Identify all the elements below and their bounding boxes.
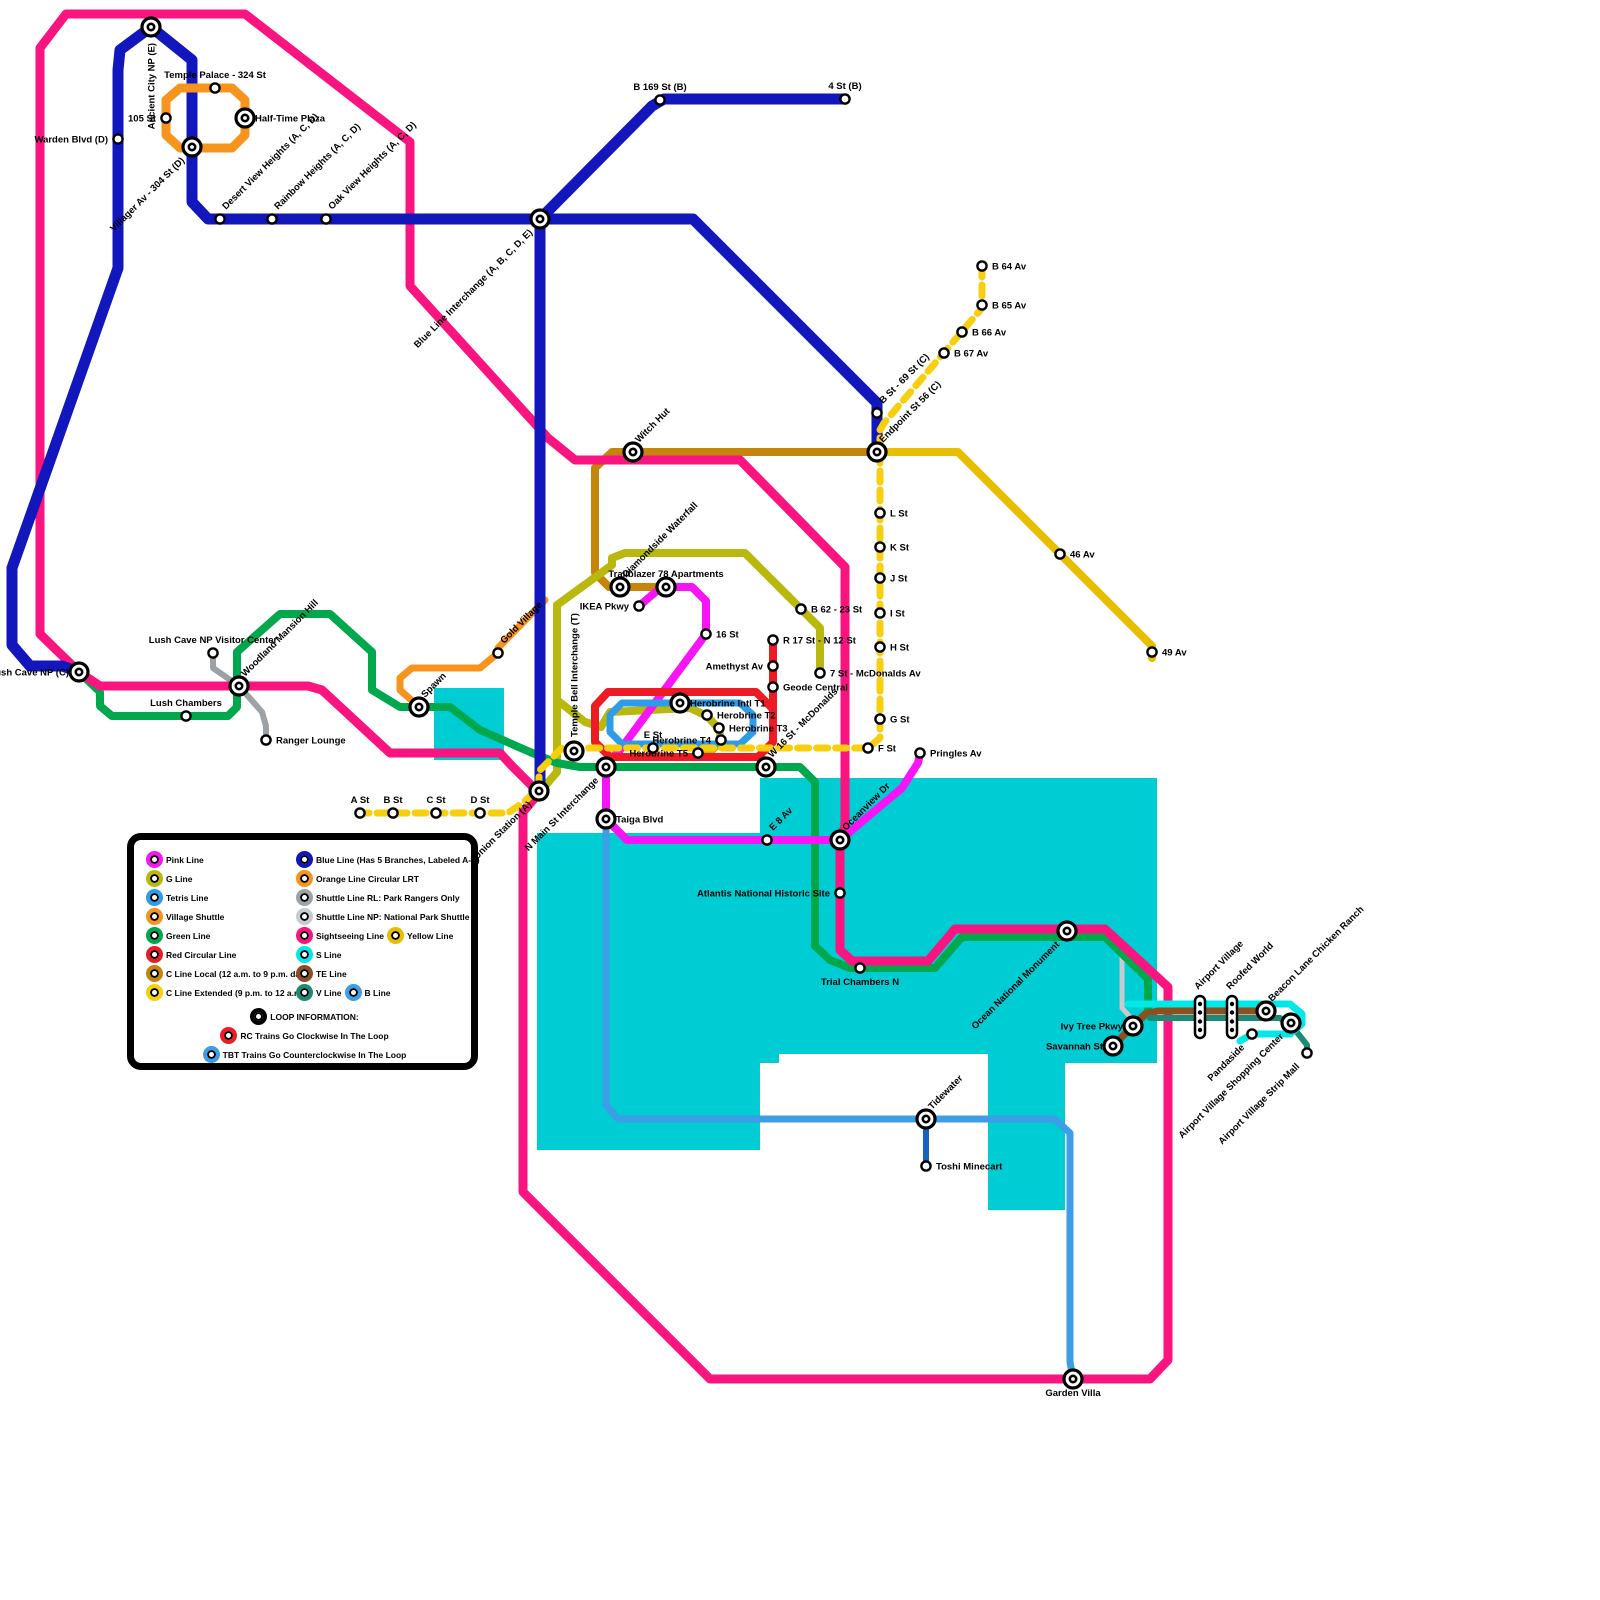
legend-row: Tetris Line — [146, 888, 296, 907]
legend-row: TE Line — [296, 964, 466, 983]
station-atlantis-national-historic-site[interactable]: Atlantis National Historic Site — [697, 888, 845, 899]
legend-item-label: Shuttle Line NP: National Park Shuttle — [316, 912, 470, 922]
loop-info-icon — [250, 1008, 267, 1025]
legend-item: TE Line — [296, 965, 347, 982]
legend-row: Shuttle Line NP: National Park Shuttle — [296, 907, 466, 926]
legend-item: Sightseeing Line — [296, 927, 384, 944]
station-label-b-62-23-st: B 62 - 23 St — [811, 605, 863, 616]
station-b-66-av[interactable]: B 66 Av — [957, 327, 1006, 338]
legend-item: Orange Line Circular LRT — [296, 870, 419, 887]
station-label-blue-line-interchange: Blue Line Interchange (A, B, C, D, E) — [412, 227, 535, 350]
line-bullet-icon — [387, 927, 404, 944]
legend-item-label: Red Circular Line — [166, 950, 236, 960]
legend-row: Sightseeing Line Yellow Line — [296, 926, 466, 945]
legend-item-label: G Line — [166, 874, 192, 884]
station-label-g-st: G St — [890, 715, 910, 726]
line-orange-line-circular-lrt — [166, 88, 245, 148]
station-label-airport-village-strip-mall: Airport Village Strip Mall — [1216, 1061, 1302, 1147]
legend-column-left: Pink Line G Line Tetris Line Village Shu… — [146, 850, 296, 1002]
line-bullet-icon — [220, 1027, 237, 1044]
station-label-b-67-av: B 67 Av — [954, 349, 989, 360]
legend-row: G Line — [146, 869, 296, 888]
station-label-b-st: B St — [384, 795, 404, 806]
station-oak-view-heights[interactable]: Oak View Heights (A, C, D) — [321, 120, 418, 224]
station-16-st[interactable]: 16 St — [701, 629, 739, 640]
line-yellow-line — [877, 452, 1152, 658]
station-label-b-65-av: B 65 Av — [992, 301, 1027, 312]
ocean-area-south — [988, 1063, 1065, 1210]
legend-item: Tetris Line — [146, 889, 208, 906]
legend-item: V Line — [296, 984, 342, 1001]
legend-item: TBT Trains Go Counterclockwise In The Lo… — [203, 1046, 407, 1063]
station-blue-line-interchange[interactable]: Blue Line Interchange (A, B, C, D, E) — [412, 210, 549, 350]
station-b-64-av[interactable]: B 64 Av — [977, 261, 1026, 272]
station-ranger-lounge[interactable]: Ranger Lounge — [261, 735, 345, 746]
legend-item: B Line — [345, 984, 391, 1001]
legend-item-label: C Line Extended (9 p.m. to 12 a.m.) — [166, 988, 307, 998]
line-bullet-icon — [146, 851, 163, 868]
legend-item-label: S Line — [316, 950, 342, 960]
station-label-d-st: D St — [471, 795, 491, 806]
station-label-herobrine-t5: Herobrine T5 — [629, 749, 688, 760]
station-label-pringles-av: Pringles Av — [930, 749, 982, 760]
station-label-rainbow-heights: Rainbow Heights (A, C, D) — [272, 121, 363, 212]
station-temple-bell-interchange[interactable]: Temple Bell Interchange (T) — [565, 613, 583, 760]
legend-row: Green Line — [146, 926, 296, 945]
station-b-65-av[interactable]: B 65 Av — [977, 300, 1026, 311]
legend-item-label: Shuttle Line RL: Park Rangers Only — [316, 893, 460, 903]
station-7-st-mcdonalds-av[interactable]: 7 St - McDonalds Av — [815, 668, 921, 679]
station-label-savannah-st: Savannah St — [1046, 1042, 1104, 1053]
station-label-ikea-pkwy: IKEA Pkwy — [580, 602, 630, 613]
station-label-temple-bell-interchange: Temple Bell Interchange (T) — [570, 613, 581, 737]
legend-item-label: B Line — [365, 988, 391, 998]
station-label-e-st: E St — [644, 730, 663, 741]
island-area — [779, 1054, 988, 1176]
legend-item-label: Pink Line — [166, 855, 204, 865]
station-label-h-st: H St — [890, 643, 910, 654]
legend-row: C Line Extended (9 p.m. to 12 a.m.) — [146, 983, 296, 1002]
station-diamondside-waterfall[interactable]: Diamondside Waterfall — [611, 500, 700, 596]
station-label-l-st: L St — [890, 509, 909, 520]
legend-row: Red Circular Line — [146, 945, 296, 964]
line-bullet-icon — [296, 851, 313, 868]
line-bullet-icon — [146, 946, 163, 963]
station-label-herobrine-intl-t1: Herobrine Intl T1 — [690, 699, 766, 710]
legend-row: Blue Line (Has 5 Branches, Labeled A-E) — [296, 850, 466, 869]
station-label-warden-blvd: Warden Blvd (D) — [34, 135, 108, 146]
station-j-st[interactable]: J St — [875, 573, 908, 584]
station-label-ivy-tree-pkwy: Ivy Tree Pkwy — [1061, 1022, 1124, 1033]
legend-item: G Line — [146, 870, 192, 887]
station-label-r-17-st-n-12-st: R 17 St - N 12 St — [783, 636, 857, 647]
legend-item-label: RC Trains Go Clockwise In The Loop — [240, 1031, 388, 1041]
line-blue-line — [540, 99, 845, 219]
line-blue-line — [540, 219, 877, 452]
station-label-a-st: A St — [351, 795, 370, 806]
legend-item-label: Blue Line (Has 5 Branches, Labeled A-E) — [316, 855, 480, 865]
station-label-taiga-blvd: Taiga Blvd — [616, 815, 664, 826]
line-bullet-icon — [296, 889, 313, 906]
station-label-herobrine-t3: Herobrine T3 — [729, 724, 788, 735]
station-label-trailblazer-78-apartments: Trailblazer 78 Apartments — [608, 569, 723, 580]
loop-info-title-row: LOOP INFORMATION: — [250, 1008, 358, 1025]
station-herobrine-t3[interactable]: Herobrine T3 — [714, 723, 787, 734]
station-label-46-av: 46 Av — [1070, 550, 1095, 561]
station-label-49-av: 49 Av — [1162, 648, 1187, 659]
station-label-amethyst-av: Amethyst Av — [706, 662, 764, 673]
station-49-av[interactable]: 49 Av — [1147, 647, 1187, 658]
station-f-st[interactable]: F St — [863, 743, 896, 754]
legend-item: Shuttle Line NP: National Park Shuttle — [296, 908, 470, 925]
station-amethyst-av[interactable]: Amethyst Av — [706, 661, 778, 672]
station-label-j-st: J St — [890, 574, 908, 585]
station-label-i-st: I St — [890, 609, 906, 620]
station-label-oak-view-heights: Oak View Heights (A, C, D) — [326, 120, 418, 212]
station-label-witch-hut: Witch Hut — [633, 405, 673, 445]
legend-row: S Line — [296, 945, 466, 964]
station-b-67-av[interactable]: B 67 Av — [939, 348, 988, 359]
station-label-toshi-minecart: Toshi Minecart — [936, 1162, 1003, 1173]
line-bullet-icon — [146, 927, 163, 944]
station-label-geode-central: Geode Central — [783, 683, 848, 694]
station-garden-villa[interactable]: Garden Villa — [1045, 1370, 1101, 1399]
station-label-f-st: F St — [878, 744, 897, 755]
line-bullet-icon — [296, 946, 313, 963]
legend-item: Yellow Line — [387, 927, 453, 944]
station-46-av[interactable]: 46 Av — [1055, 549, 1095, 560]
legend-item-label: TE Line — [316, 969, 347, 979]
legend-item: Pink Line — [146, 851, 204, 868]
station-label-4-st: 4 St (B) — [828, 81, 861, 92]
legend-row: Pink Line — [146, 850, 296, 869]
legend-item-label: C Line Local (12 a.m. to 9 p.m. daily) — [166, 969, 312, 979]
legend-item: C Line Local (12 a.m. to 9 p.m. daily) — [146, 965, 312, 982]
line-bullet-icon — [296, 870, 313, 887]
station-label-desert-view-heights: Desert View Heights (A, C, D) — [220, 112, 321, 213]
legend-item-label: Yellow Line — [407, 931, 453, 941]
station-warden-blvd[interactable]: Warden Blvd (D) — [34, 134, 122, 145]
legend-item-label: V Line — [316, 988, 342, 998]
station-label-lush-cave-np: Lush Cave NP (C) — [0, 668, 69, 679]
station-rainbow-heights[interactable]: Rainbow Heights (A, C, D) — [267, 121, 363, 223]
legend-item: Green Line — [146, 927, 210, 944]
station-l-st[interactable]: L St — [875, 508, 908, 519]
station-pringles-av[interactable]: Pringles Av — [915, 748, 982, 759]
legend-item: RC Trains Go Clockwise In The Loop — [220, 1027, 388, 1044]
station-label-b-66-av: B 66 Av — [972, 328, 1007, 339]
station-label-garden-villa: Garden Villa — [1045, 1388, 1101, 1399]
legend-item: Red Circular Line — [146, 946, 236, 963]
legend-item-label: Tetris Line — [166, 893, 208, 903]
legend-loop-info: LOOP INFORMATION: RC Trains Go Clockwise… — [146, 1008, 463, 1063]
legend-box: Pink Line G Line Tetris Line Village Shu… — [127, 833, 478, 1070]
legend-item: C Line Extended (9 p.m. to 12 a.m.) — [146, 984, 307, 1001]
legend-row: C Line Local (12 a.m. to 9 p.m. daily) — [146, 964, 296, 983]
line-bullet-icon — [146, 984, 163, 1001]
station-h-st[interactable]: H St — [875, 642, 909, 653]
station-label-trial-chambers-n: Trial Chambers N — [821, 977, 899, 988]
legend-row: Orange Line Circular LRT — [296, 869, 466, 888]
transit-map-page: Ancient City NP (E)Temple Palace - 324 S… — [0, 0, 1600, 1600]
legend-columns: Pink Line G Line Tetris Line Village Shu… — [146, 850, 463, 1002]
legend-item-label: Orange Line Circular LRT — [316, 874, 419, 884]
station-label-ranger-lounge: Ranger Lounge — [276, 736, 346, 747]
line-bullet-icon — [296, 908, 313, 925]
station-r-17-st-n-12-st[interactable]: R 17 St - N 12 St — [768, 635, 856, 646]
station-herobrine-intl-t1[interactable]: Herobrine Intl T1 — [671, 694, 766, 712]
station-label-atlantis-national-historic-site: Atlantis National Historic Site — [697, 889, 830, 900]
line-bullet-icon — [296, 927, 313, 944]
legend-row: Shuttle Line RL: Park Rangers Only — [296, 888, 466, 907]
transit-map-svg: Ancient City NP (E)Temple Palace - 324 S… — [0, 0, 1600, 1600]
station-label-c-st: C St — [427, 795, 447, 806]
loop-info-title: LOOP INFORMATION: — [270, 1012, 358, 1022]
station-105-st[interactable]: 105 St — [128, 113, 171, 124]
line-bullet-icon — [203, 1046, 220, 1063]
line-bullet-icon — [146, 965, 163, 982]
legend-item: Shuttle Line RL: Park Rangers Only — [296, 889, 460, 906]
station-k-st[interactable]: K St — [875, 542, 909, 553]
station-label-b-169-st: B 169 St (B) — [633, 82, 686, 93]
station-label-temple-palace-324-st: Temple Palace - 324 St — [164, 70, 267, 81]
legend-row: V Line B Line — [296, 983, 466, 1002]
station-label-lush-cave-np-visitor-center: Lush Cave NP Visitor Center — [149, 635, 278, 646]
legend-item: S Line — [296, 946, 342, 963]
legend-row: Village Shuttle — [146, 907, 296, 926]
station-i-st[interactable]: I St — [875, 608, 905, 619]
station-label-lush-chambers: Lush Chambers — [150, 698, 222, 709]
station-label-7-st-mcdonalds-av: 7 St - McDonalds Av — [830, 669, 921, 680]
line-bullet-icon — [345, 984, 362, 1001]
legend-row: RC Trains Go Clockwise In The Loop — [220, 1027, 388, 1044]
legend-item-label: TBT Trains Go Counterclockwise In The Lo… — [223, 1050, 407, 1060]
line-bullet-icon — [146, 889, 163, 906]
ocean-area-east — [760, 778, 1157, 1063]
ocean-area-west — [537, 833, 760, 1150]
legend-item: Village Shuttle — [146, 908, 224, 925]
station-union-station[interactable]: Union Station (A) — [471, 782, 548, 862]
station-label-k-st: K St — [890, 543, 910, 554]
line-bullet-icon — [296, 965, 313, 982]
legend-item-label: Green Line — [166, 931, 210, 941]
station-ikea-pkwy[interactable]: IKEA Pkwy — [580, 601, 644, 612]
station-label-b-64-av: B 64 Av — [992, 262, 1027, 273]
legend-item-label: Sightseeing Line — [316, 931, 384, 941]
station-label-herobrine-t2: Herobrine T2 — [717, 711, 776, 722]
legend-row: TBT Trains Go Counterclockwise In The Lo… — [203, 1046, 407, 1063]
line-bullet-icon — [146, 908, 163, 925]
station-beacon-lane-chicken-ranch[interactable]: Beacon Lane Chicken Ranch — [1257, 904, 1366, 1020]
line-bullet-icon — [296, 984, 313, 1001]
line-bullet-icon — [146, 870, 163, 887]
station-label-beacon-lane-chicken-ranch: Beacon Lane Chicken Ranch — [1266, 904, 1366, 1004]
legend-column-right: Blue Line (Has 5 Branches, Labeled A-E) … — [296, 850, 466, 1002]
station-taiga-blvd[interactable]: Taiga Blvd — [597, 810, 664, 828]
station-g-st[interactable]: G St — [875, 714, 910, 725]
legend-item: Blue Line (Has 5 Branches, Labeled A-E) — [296, 851, 480, 868]
legend-item-label: Village Shuttle — [166, 912, 224, 922]
station-desert-view-heights[interactable]: Desert View Heights (A, C, D) — [215, 112, 321, 224]
station-label-16-st: 16 St — [716, 630, 740, 641]
station-label-105-st: 105 St — [128, 114, 157, 125]
